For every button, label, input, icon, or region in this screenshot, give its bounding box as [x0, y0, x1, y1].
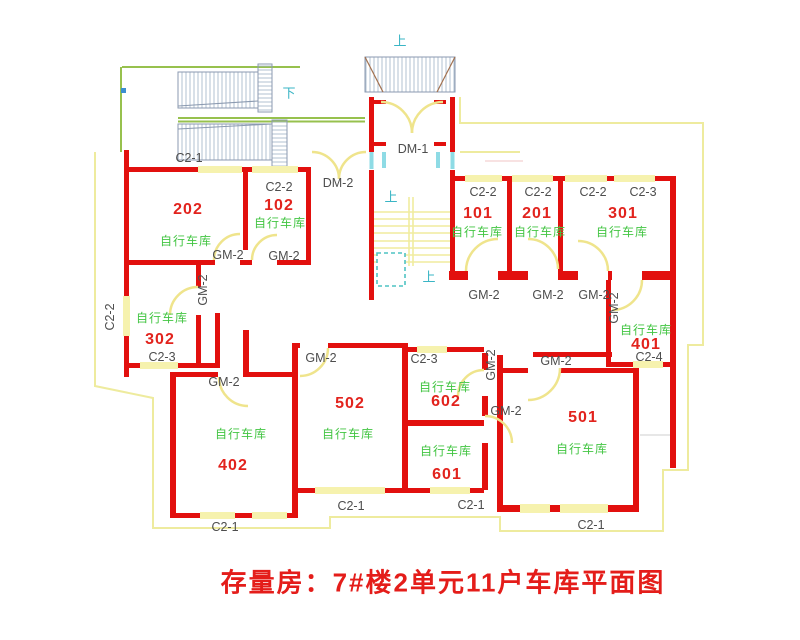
- entrance-ramp: [365, 57, 455, 92]
- bicycle-ramp-area: [121, 64, 365, 170]
- lower-ramp: [178, 120, 287, 170]
- floorplan-canvas: [0, 0, 800, 640]
- floor-plan-drawing: 上下上上202102101201301302401402502602601501…: [0, 0, 800, 640]
- survey-dot: [121, 88, 126, 93]
- staircase: [374, 197, 450, 286]
- upper-ramp: [178, 64, 272, 112]
- outer-boundary: [95, 97, 703, 531]
- construction-lines: [485, 161, 670, 435]
- elevator-shaft: [377, 253, 405, 286]
- door-frames: [370, 152, 455, 169]
- drawing-title: 存量房：7#楼2单元11户车库平面图: [221, 563, 666, 600]
